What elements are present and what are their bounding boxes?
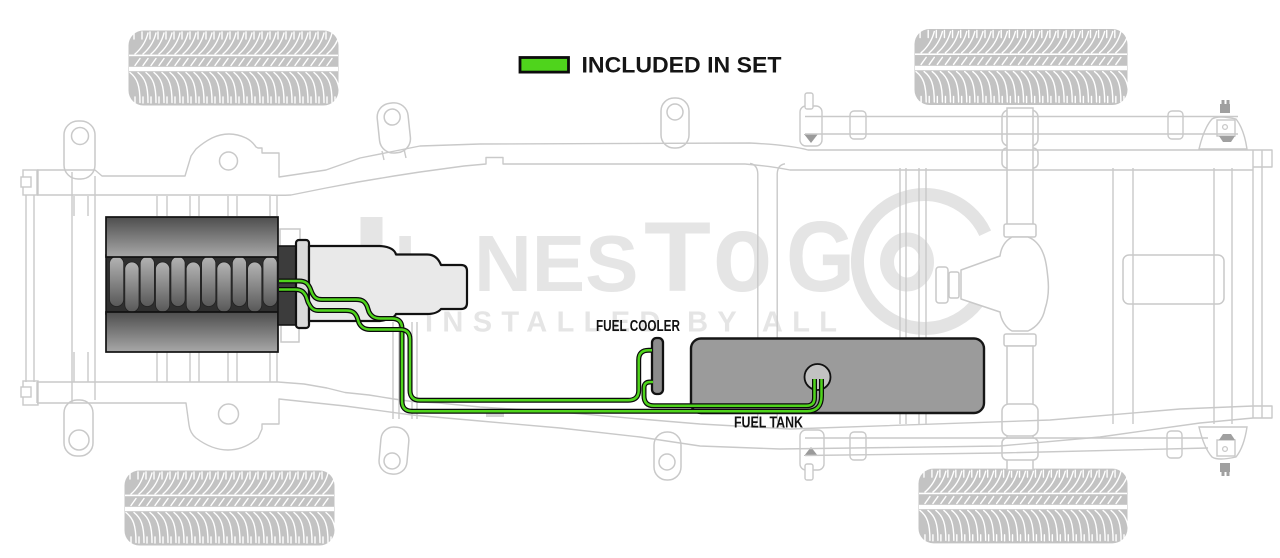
svg-text:NES: NES [474,219,639,308]
svg-text:FUEL COOLER: FUEL COOLER [596,318,680,335]
svg-text:T: T [644,201,711,312]
svg-text:FUEL TANK: FUEL TANK [734,415,803,432]
svg-text:o: o [713,191,772,315]
svg-text:G: G [786,201,855,313]
svg-text:INCLUDED IN SET: INCLUDED IN SET [582,53,782,78]
